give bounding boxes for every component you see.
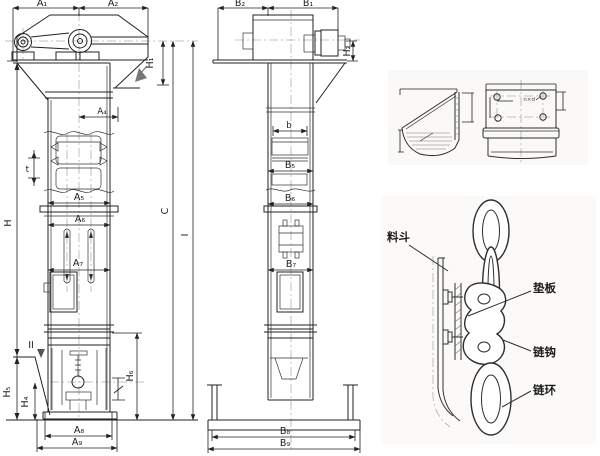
front-view: A₁ A₂ A₄ [2,0,198,452]
holes-note-label: n×d [523,97,535,103]
dim-label-h1: H₁ [145,57,156,68]
dim-label-a9: A₉ [72,437,82,448]
dim-label-a2: A₂ [108,0,118,9]
dim-label-h4: H₄ [20,396,31,407]
section-mark-label: II [28,340,34,351]
technical-drawing-canvas: A₁ A₂ A₄ [0,0,600,456]
dim-label-i: I [180,234,191,237]
dim-label-b5: B₅ [285,160,296,171]
dim-label-h6: H₆ [125,370,136,381]
dim-label-b2: B₂ [235,0,246,9]
dim-label-a1: A₁ [37,0,47,9]
dim-label-b6: B₆ [285,193,296,204]
dim-label-a6: A₆ [75,214,85,225]
callout-bucket: 料斗 [387,230,410,244]
dim-label-a4: A₄ [97,107,107,117]
dim-label-b1: B₁ [303,0,314,9]
dim-label-a5: A₅ [74,192,84,203]
dim-label-h: H [3,219,14,226]
dim-label-b9: B₉ [280,438,291,449]
dim-label-c: C [160,207,171,214]
dim-label-t: t [26,165,30,175]
dim-label-b7: B₇ [286,259,297,270]
dim-label-a7: A₇ [73,258,83,269]
callout-ring: 链环 [533,383,556,397]
dim-label-b: b [286,121,291,131]
chain-detail: 料斗 垫板 链钩 链环 [382,196,596,444]
dim-label-a8: A₈ [74,425,84,436]
bucket-detail: n×d [388,70,588,165]
side-view: B₂ B₁ H₂ b B₅ B₆ [207,0,360,453]
elevator-drawing-page: A₁ A₂ A₄ [0,0,600,456]
dim-label-b8: B₈ [280,426,291,437]
dim-label-h5: H₅ [2,386,13,397]
callout-pad: 垫板 [533,281,556,295]
section-arrow [37,349,45,358]
callout-hook: 链钩 [533,345,556,359]
discharge-arrow [135,68,147,82]
dim-label-h2: H₂ [342,45,353,56]
